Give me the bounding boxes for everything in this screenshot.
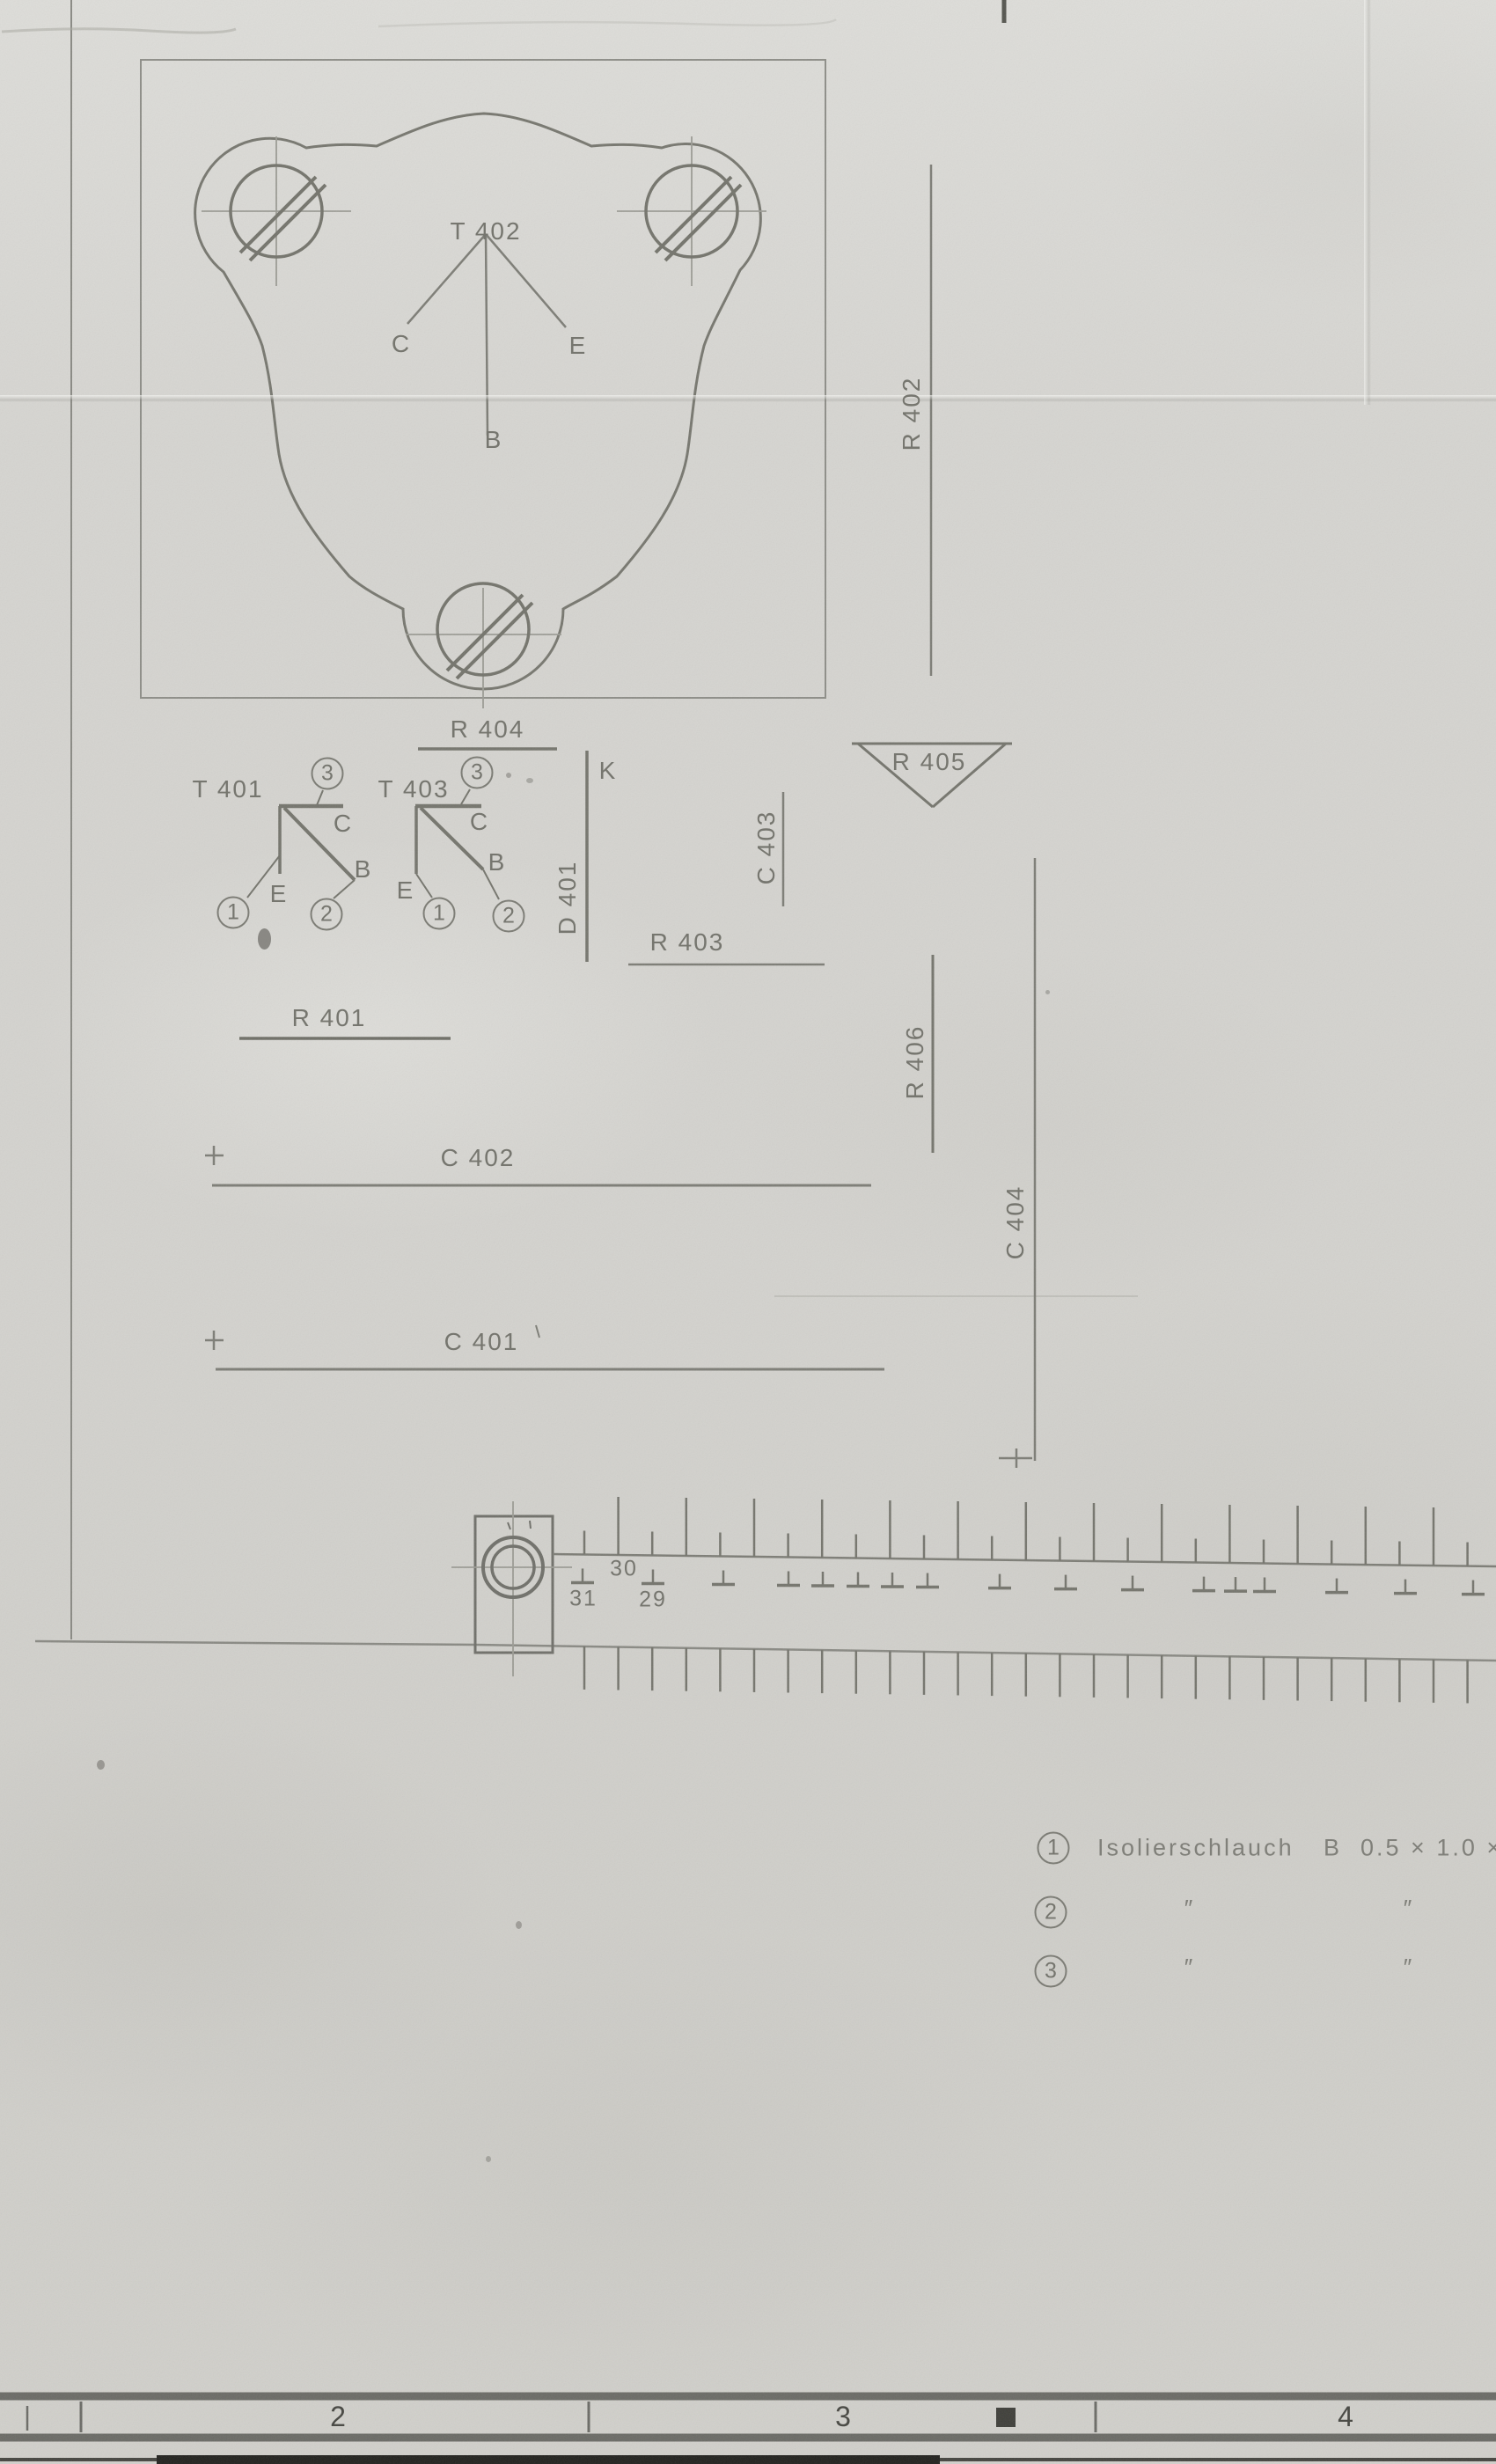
ref-label-c402: C 402 xyxy=(441,1146,516,1170)
ref-label-r405: R 405 xyxy=(892,750,967,774)
paper-grain-overlay xyxy=(0,0,1496,2464)
t401-pin3-circle: 3 xyxy=(312,758,344,790)
parts-item-3-circle: 3 xyxy=(1035,1955,1067,1988)
ref-label-r403: R 403 xyxy=(650,930,725,955)
plate-pin-c: C xyxy=(392,332,411,356)
t403-pin3-circle: 3 xyxy=(461,757,494,789)
ruler-number-29: 29 xyxy=(639,1589,667,1611)
ruler-number-30: 30 xyxy=(610,1558,638,1580)
plate-pin-e: E xyxy=(569,334,588,358)
scale-number-4: 4 xyxy=(1338,2402,1353,2431)
ref-label-t403: T 403 xyxy=(378,777,449,802)
parts-item-3-ditto-2: ″ xyxy=(1404,1956,1415,1980)
t401-pin-e: E xyxy=(270,882,289,906)
scanned-schematic-sheet: T 402 C E B R 402 R 404 K D 401 T 401 3 … xyxy=(0,0,1496,2464)
parts-item-2-ditto-1: ″ xyxy=(1184,1897,1196,1921)
t401-pin-b: B xyxy=(355,857,373,882)
parts-item-2-circle: 2 xyxy=(1035,1896,1067,1929)
t403-pin1-circle: 1 xyxy=(423,898,456,930)
parts-item-1-spec: B 0.5 × 1.0 × xyxy=(1324,1837,1496,1860)
t403-pin-c: C xyxy=(470,810,489,834)
t403-pin-e: E xyxy=(397,878,415,903)
drawing-linework xyxy=(0,0,1496,2464)
t403-pin-b: B xyxy=(488,850,507,875)
plate-pin-b: B xyxy=(485,428,503,452)
parts-item-2-ditto-2: ″ xyxy=(1404,1897,1415,1921)
t401-pin2-circle: 2 xyxy=(311,898,343,931)
ref-label-d401: D 401 xyxy=(555,861,580,935)
t401-pin1-circle: 1 xyxy=(217,897,250,929)
t403-pin2-circle: 2 xyxy=(493,900,525,933)
ref-label-k: K xyxy=(599,759,618,783)
ref-label-c403: C 403 xyxy=(754,810,779,885)
parts-item-3-ditto-1: ″ xyxy=(1184,1956,1196,1980)
scale-number-2: 2 xyxy=(330,2402,346,2431)
parts-item-1-circle: 1 xyxy=(1038,1832,1070,1865)
t401-pin-c: C xyxy=(334,811,353,836)
parts-item-1-name: Isolierschlauch xyxy=(1097,1837,1294,1860)
ruler-number-31: 31 xyxy=(569,1588,598,1610)
ref-label-t402: T 402 xyxy=(450,219,521,244)
ref-label-c401: C 401 xyxy=(444,1330,519,1354)
ref-label-r406: R 406 xyxy=(903,1025,928,1100)
ref-label-r401: R 401 xyxy=(292,1006,367,1030)
ref-label-t401: T 401 xyxy=(192,777,263,802)
scale-number-3: 3 xyxy=(835,2402,851,2431)
ref-label-r404: R 404 xyxy=(451,717,525,742)
ref-label-r402: R 402 xyxy=(899,377,924,451)
ref-label-c404: C 404 xyxy=(1003,1185,1028,1260)
